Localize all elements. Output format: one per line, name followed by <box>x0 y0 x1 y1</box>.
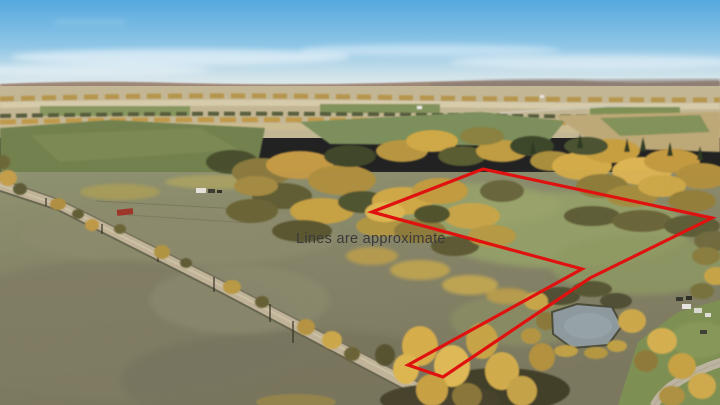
aerial-photo: Lines are approximate <box>0 0 720 405</box>
distant-farmstead <box>417 106 422 109</box>
photo-canvas <box>0 0 720 405</box>
boundary-disclaimer-text: Lines are approximate <box>296 231 446 247</box>
grain-overlay <box>0 170 720 405</box>
